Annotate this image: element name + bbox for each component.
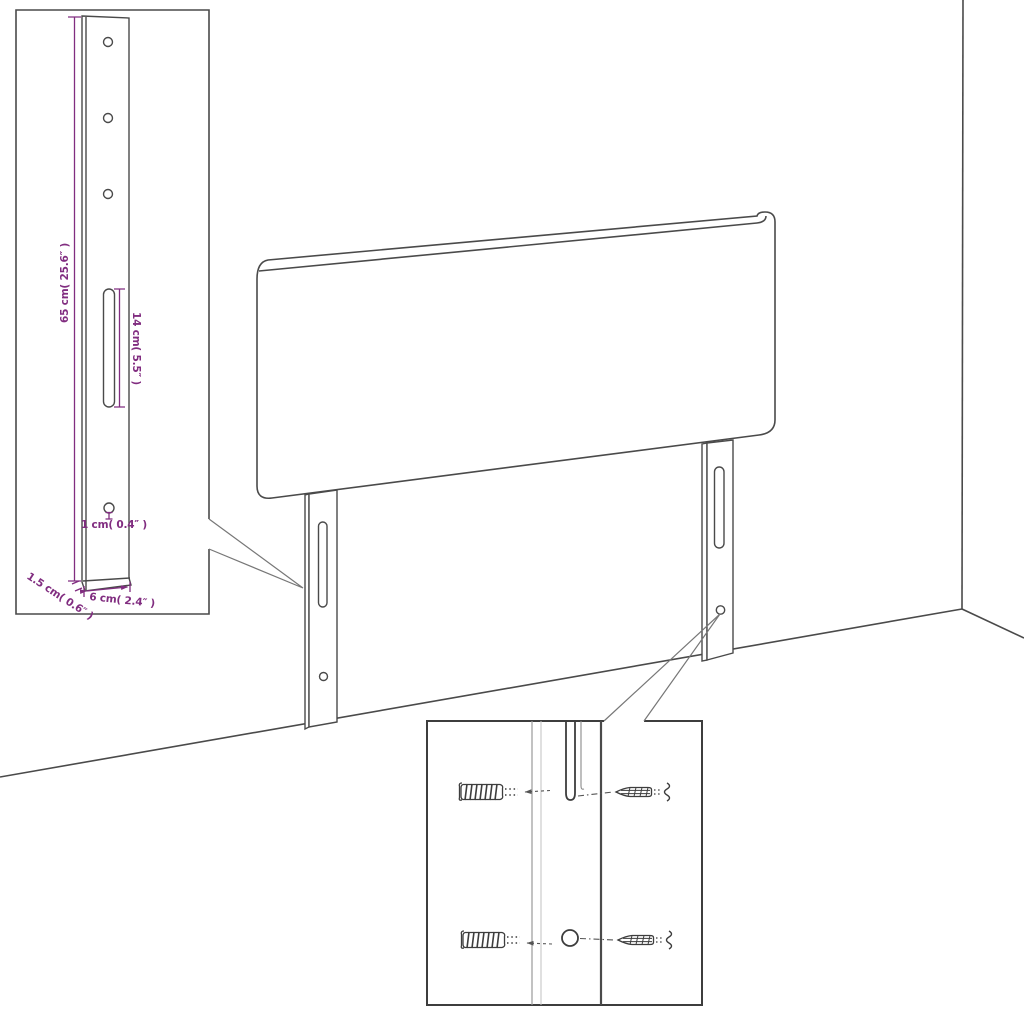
left-leg-front-face [309,490,337,727]
dimension-callout-lines [209,519,303,588]
enlarged-leg-outline [82,16,131,591]
mounting-callout-lines [604,614,720,721]
wall-corner-line [962,0,963,609]
dimension-label-slot: 14 cm( 5.5″ ) [130,312,142,385]
floor-line-right [962,609,1024,638]
headboard-panel [257,212,775,498]
headboard-diagram: 65 cm( 25.6″ ) 14 cm( 5.5″ ) 1 cm( 0.4″ … [0,0,1024,1024]
headboard-front-face [257,212,775,498]
dimension-label-hole: 1 cm( 0.4″ ) [81,519,147,531]
diagram-canvas: 65 cm( 25.6″ ) 14 cm( 5.5″ ) 1 cm( 0.4″ … [0,0,1024,1024]
mounting-inset-box [427,721,702,1005]
dimension-label-height: 65 cm( 25.6″ ) [59,243,71,323]
mounting-inset [427,614,720,1005]
headboard-right-leg [702,440,733,661]
headboard-left-leg [305,490,337,729]
